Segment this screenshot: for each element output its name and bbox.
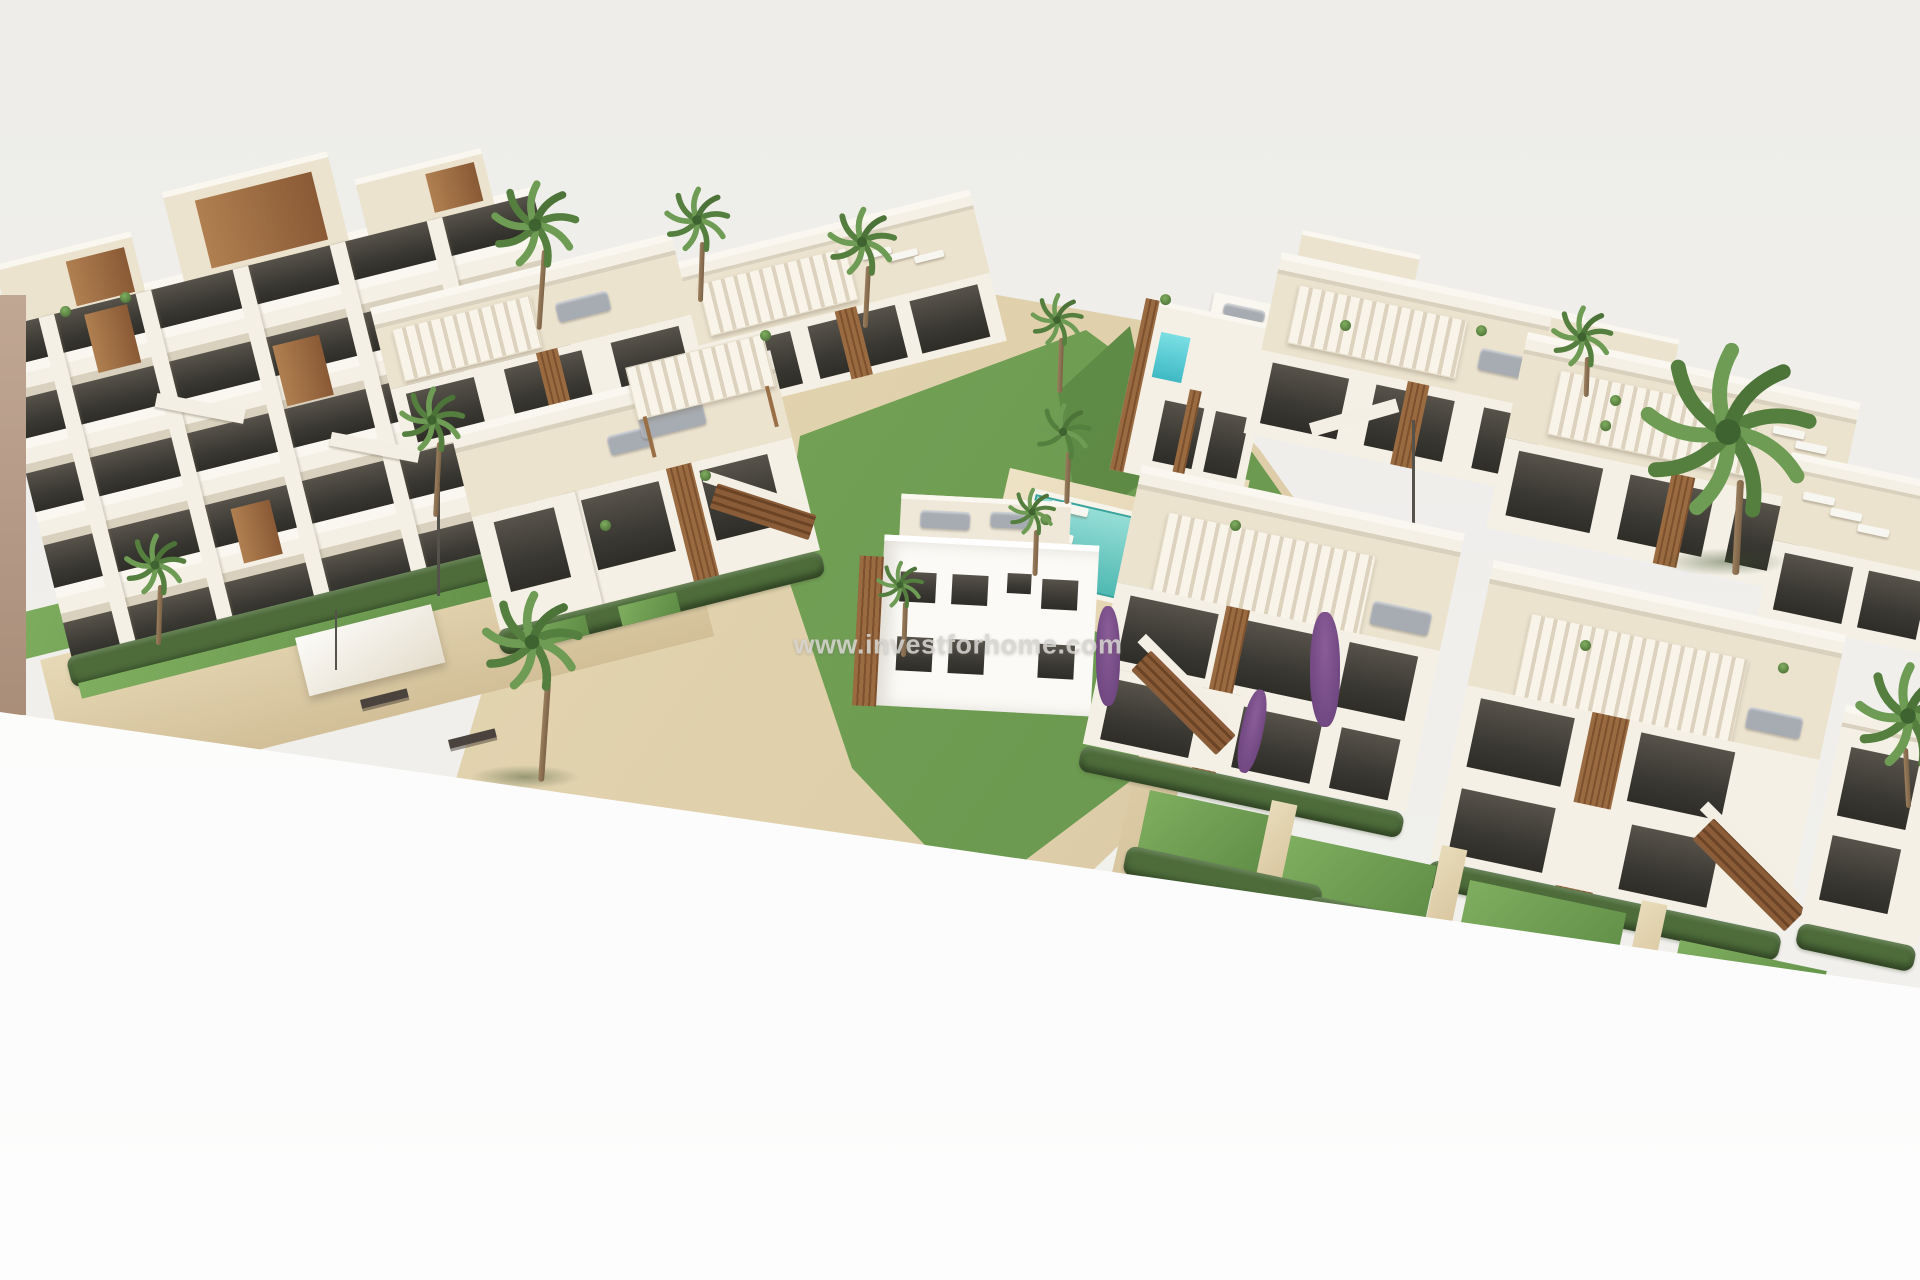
palm-tree xyxy=(487,177,583,273)
watermark: www.investforhome.com xyxy=(793,630,1122,661)
potted-plant xyxy=(1580,640,1591,651)
potted-plant xyxy=(120,292,131,303)
palm-tree xyxy=(477,587,587,697)
palm-shadow xyxy=(1660,548,1790,576)
palm-tree xyxy=(1850,658,1920,774)
potted-plant xyxy=(700,470,711,481)
palm-tree xyxy=(1632,336,1824,528)
glazing xyxy=(1819,835,1901,914)
glazing xyxy=(1857,571,1920,640)
window xyxy=(1041,579,1079,611)
window xyxy=(1007,573,1032,594)
terrace-sofa xyxy=(920,510,971,531)
potted-plant xyxy=(1340,320,1351,331)
palm-tree xyxy=(824,204,900,280)
glazing xyxy=(1336,642,1418,721)
potted-plant xyxy=(60,306,71,317)
potted-plant xyxy=(1230,520,1241,531)
window xyxy=(951,574,989,606)
potted-plant xyxy=(1610,395,1621,406)
right-lower-block-1 xyxy=(1077,465,1465,839)
palm-tree xyxy=(874,559,926,611)
palm-tree xyxy=(1006,486,1058,538)
palm-tree xyxy=(661,184,733,256)
potted-plant xyxy=(600,520,611,531)
palm-tree xyxy=(1028,291,1086,349)
glazing xyxy=(1329,727,1401,800)
cut-wall-pink xyxy=(0,295,26,715)
palm-tree xyxy=(1032,401,1094,463)
palm-tree xyxy=(121,531,189,599)
bougainvillea xyxy=(1310,612,1340,727)
potted-plant xyxy=(760,330,771,341)
wood-panel xyxy=(425,162,483,213)
lamp-post xyxy=(335,610,337,670)
palm-tree xyxy=(1548,303,1616,371)
render-stage: www.investforhome.com xyxy=(0,0,1920,1280)
palm-tree xyxy=(396,384,468,456)
